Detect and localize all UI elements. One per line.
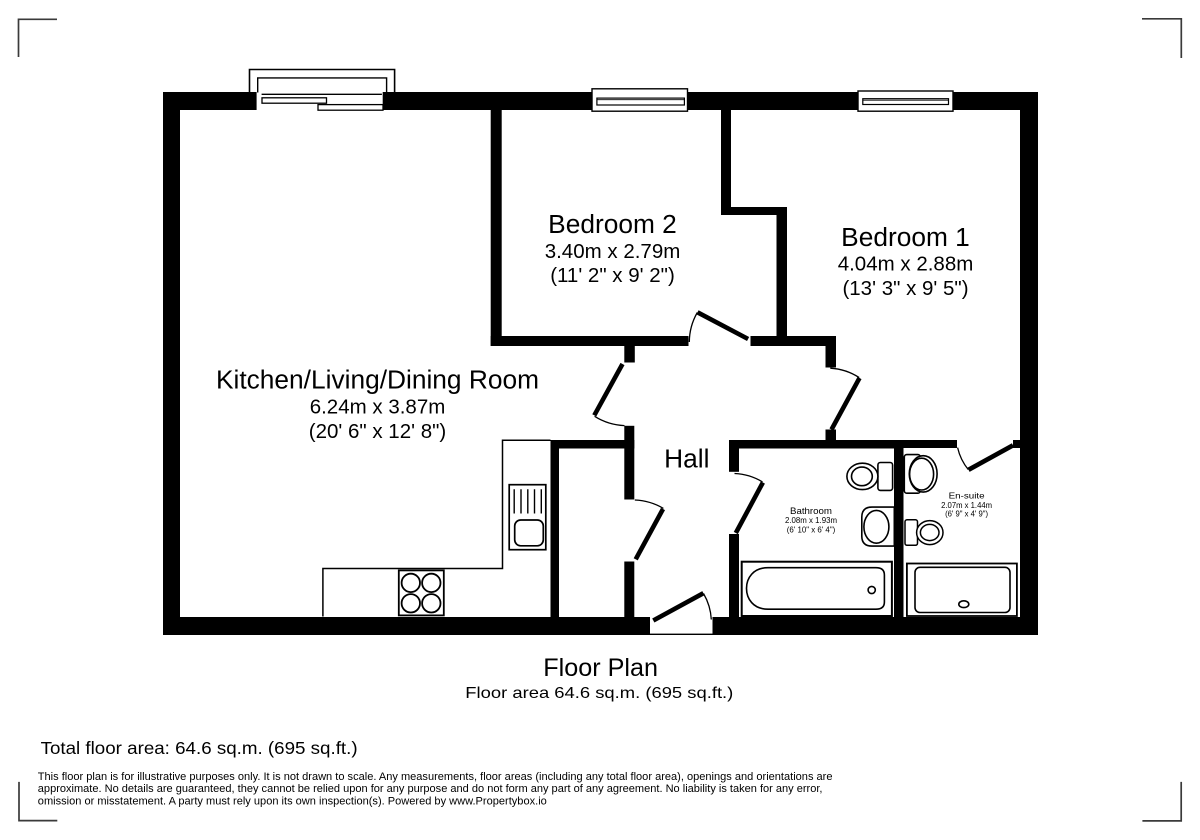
svg-text:2.08m x 1.93m: 2.08m x 1.93m (785, 516, 837, 525)
svg-text:Bathroom: Bathroom (790, 506, 832, 516)
svg-text:This floor plan is for illustr: This floor plan is for illustrative purp… (38, 771, 833, 783)
svg-text:(11' 2" x 9' 2"): (11' 2" x 9' 2") (550, 264, 675, 287)
svg-text:Hall: Hall (664, 444, 709, 474)
svg-text:Bedroom 1: Bedroom 1 (841, 222, 970, 252)
svg-text:(6' 10" x 6' 4"): (6' 10" x 6' 4") (787, 526, 836, 535)
svg-text:2.07m x 1.44m: 2.07m x 1.44m (941, 500, 992, 510)
svg-text:6.24m x 3.87m: 6.24m x 3.87m (310, 395, 446, 418)
svg-text:Bedroom 2: Bedroom 2 (548, 209, 677, 239)
svg-text:(20' 6" x 12' 8"): (20' 6" x 12' 8") (309, 420, 446, 443)
svg-text:Floor Plan: Floor Plan (543, 654, 658, 682)
svg-text:Kitchen/Living/Dining Room: Kitchen/Living/Dining Room (216, 365, 539, 395)
svg-text:(6' 9" x 4' 9"): (6' 9" x 4' 9") (945, 510, 988, 519)
svg-text:Total floor area: 64.6 sq.m. (: Total floor area: 64.6 sq.m. (695 sq.ft.… (41, 738, 358, 758)
svg-text:En-suite: En-suite (949, 490, 985, 500)
svg-text:omission or misstatement. A pa: omission or misstatement. A party must r… (38, 795, 547, 807)
svg-text:(13' 3" x 9' 5"): (13' 3" x 9' 5") (842, 277, 968, 300)
svg-text:Floor area 64.6 sq.m. (695 sq.: Floor area 64.6 sq.m. (695 sq.ft.) (465, 685, 733, 702)
svg-text:approximate. No details are gu: approximate. No details are guaranteed, … (38, 783, 823, 795)
svg-text:3.40m x 2.79m: 3.40m x 2.79m (545, 240, 681, 263)
svg-text:4.04m x 2.88m: 4.04m x 2.88m (838, 253, 974, 276)
